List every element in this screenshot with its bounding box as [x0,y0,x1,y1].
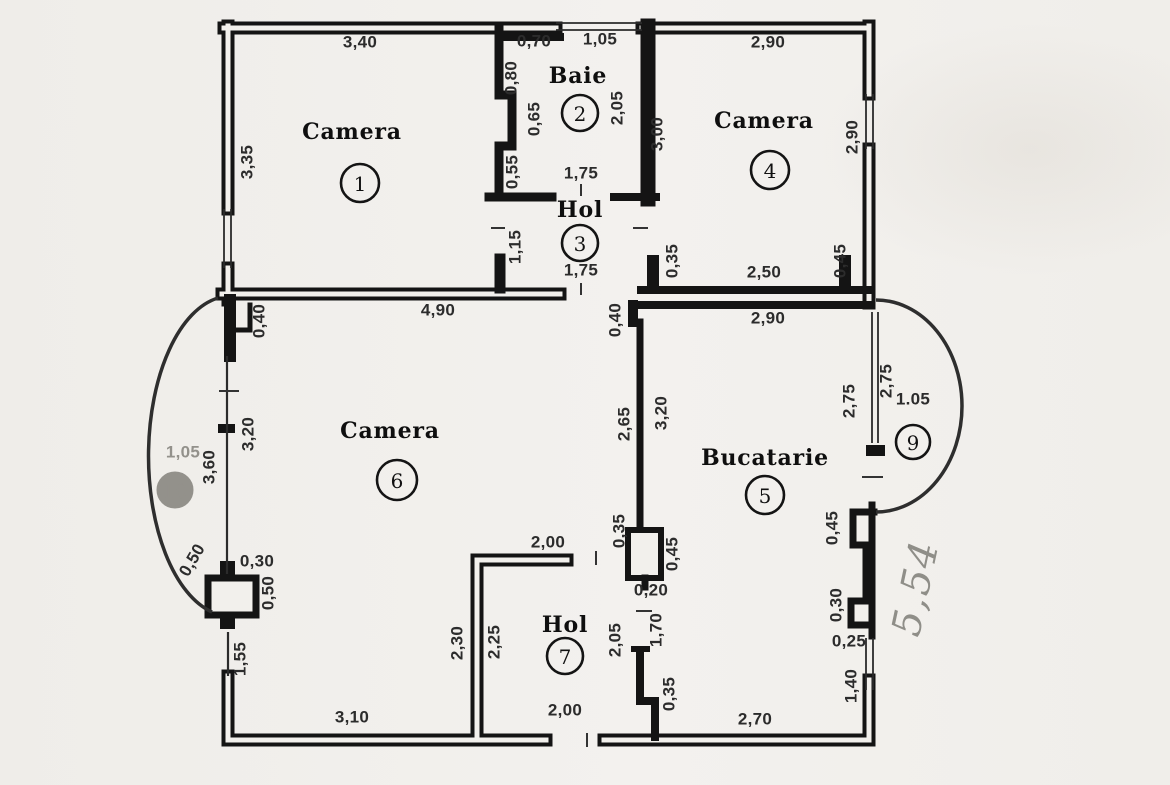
room-number: 5 [759,484,772,508]
balcony9-door-post [866,445,885,456]
dimension-label: 3,35 [238,145,257,179]
room-name: Bucatarie [701,445,829,471]
dimension-label: 4,90 [421,301,455,320]
dimension-label: 0,45 [663,537,682,571]
room-number: 1 [354,172,367,196]
dimension-label: 3,10 [335,708,369,727]
dimension-label: 2,50 [747,263,781,282]
dimension-label: 0,40 [250,304,269,338]
dimension-label: 1,75 [564,164,598,183]
room-number: 6 [391,469,404,493]
dimension-label: 2,70 [738,710,772,729]
dimension-label: 3,20 [652,396,671,430]
dimension-label: 3,40 [343,33,377,52]
dimension-label: 0,35 [610,514,629,548]
dimension-label: 0,40 [606,303,625,337]
room-name: Baie [549,63,607,89]
dimension-label: 2,30 [448,626,467,660]
dimension-label: 0,50 [259,576,278,610]
dimension-label: 0,50 [175,540,209,579]
hol7-right-wall [640,650,655,737]
dimension-label: 2,05 [608,91,627,125]
room-number: 3 [574,232,587,256]
dimension-label: 1.05 [896,390,930,409]
window-left-camera1 [224,209,231,268]
dimension-label: 1,70 [647,613,666,647]
dimension-label: 0,65 [525,102,544,136]
dimension-label: 1,05 [583,30,617,49]
floor-plan-svg: 3,400,701,052,903,350,800,650,552,053,00… [0,0,1170,785]
dimension-label: 2,65 [615,407,634,441]
room-number: 9 [907,431,920,455]
dimension-label: 1,40 [842,669,861,703]
room-name: Hol [542,612,588,638]
dimension-label: 0,80 [502,61,521,95]
dimension-label: 3,20 [239,417,258,451]
handwritten-note-layer: 5,54 [883,536,948,641]
handwritten-note: 5,54 [883,536,948,641]
kitchen-left-box [628,530,661,578]
room-number: 7 [559,645,572,669]
pillar [208,578,256,615]
dimension-label: 0,35 [660,677,679,711]
room-number: 2 [574,102,587,126]
dimension-label: 2,90 [751,309,785,328]
room-number: 10 [162,479,187,503]
room-number: 4 [764,159,777,183]
dimension-label: 0,70 [517,32,551,51]
dimension-label: 0,20 [634,581,668,600]
dimension-label: 2,05 [606,623,625,657]
room-name: Camera [340,418,440,444]
dimension-label: 2,00 [548,701,582,720]
room-name: Camera [302,119,402,145]
dimension-label: 0,55 [503,155,522,189]
dimension-label: 2,75 [840,384,859,418]
dimension-label: 2,00 [531,533,565,552]
room-name: Camera [714,108,814,134]
dimension-label: 2,90 [843,120,862,154]
dimension-label: 2,90 [751,33,785,52]
dimension-label: 3,60 [200,450,219,484]
dimension-label: 2,25 [485,625,504,659]
dimension-label: 1,05 [166,443,200,462]
window-right-camera4 [866,94,873,149]
dimension-label: 0,35 [663,244,682,278]
pillar-stub-bottom [220,615,235,629]
dimension-label: 0,25 [832,632,866,651]
dimension-label: 0,30 [827,588,846,622]
balcony10-jamb-step [237,305,250,330]
dimension-label: 2,75 [877,364,896,398]
dimension-label: 1,55 [231,642,250,676]
room-name: Hol [557,197,603,223]
dimension-label: 1,15 [506,230,525,264]
dimension-label: 3,00 [648,117,667,151]
dimension-label: 1,75 [564,261,598,280]
dimension-label: 0,45 [831,244,850,278]
dimension-label: 0,45 [823,511,842,545]
dimension-label: 0,30 [240,552,274,571]
